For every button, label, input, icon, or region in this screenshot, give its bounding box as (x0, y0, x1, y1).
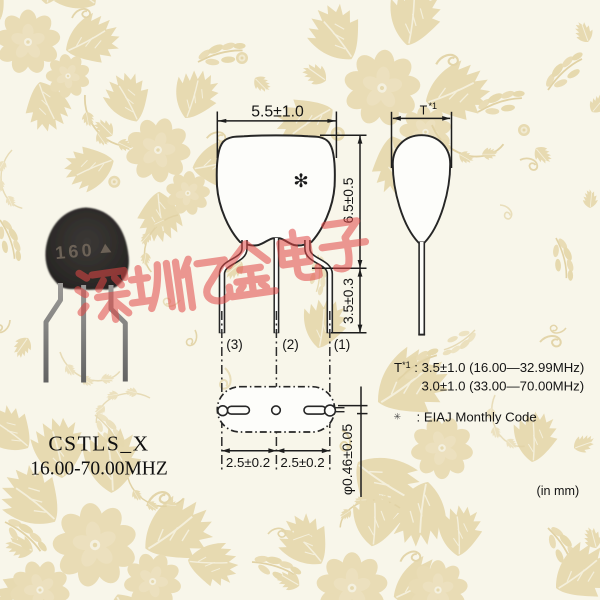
svg-text:2.5±0.2: 2.5±0.2 (226, 455, 270, 470)
svg-text:6.5±0.5: 6.5±0.5 (341, 177, 356, 223)
svg-text:160: 160 (54, 240, 95, 263)
svg-text:: EIAJ Monthly Code: : EIAJ Monthly Code (417, 410, 537, 425)
svg-text:3.5±0.3: 3.5±0.3 (341, 278, 356, 324)
svg-text:5.5±1.0: 5.5±1.0 (251, 103, 304, 120)
svg-text:(in mm): (in mm) (537, 484, 580, 498)
svg-text:T: T (420, 104, 428, 118)
svg-text:(2): (2) (282, 337, 299, 352)
svg-text:T*1 : 3.5±1.0 (16.00—32.99MHz): T*1 : 3.5±1.0 (16.00—32.99MHz) (394, 360, 584, 375)
svg-text:3.0±1.0 (33.00—70.00MHz): 3.0±1.0 (33.00—70.00MHz) (422, 379, 585, 394)
svg-text:✳: ✳ (394, 412, 402, 422)
svg-text:✻: ✻ (293, 170, 309, 191)
svg-text:*1: *1 (429, 101, 438, 111)
svg-text:φ0.46±0.05: φ0.46±0.05 (339, 424, 355, 495)
svg-text:16.00-70.00MHZ: 16.00-70.00MHZ (30, 459, 168, 480)
svg-text:(3): (3) (226, 337, 243, 352)
svg-text:(1): (1) (334, 337, 351, 352)
svg-text:2.5±0.2: 2.5±0.2 (280, 455, 324, 470)
svg-text:CSTLS_X: CSTLS_X (48, 432, 149, 456)
